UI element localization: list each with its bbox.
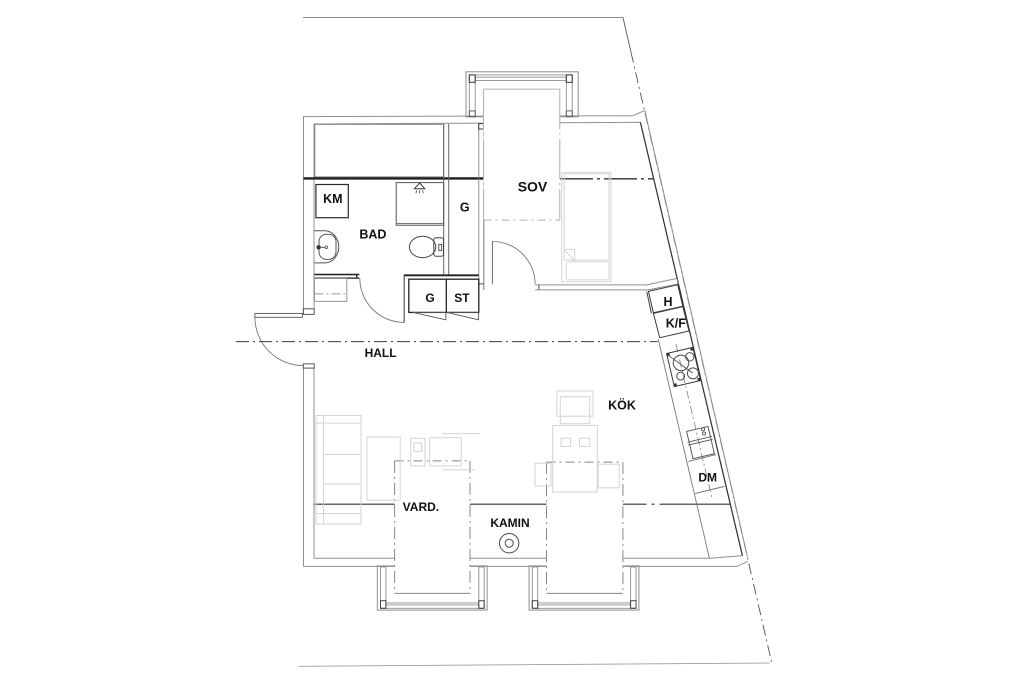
svg-text:KAMIN: KAMIN	[490, 516, 529, 530]
svg-text:SOV: SOV	[518, 179, 548, 195]
svg-text:DM: DM	[698, 471, 717, 485]
svg-text:G: G	[460, 201, 470, 215]
svg-text:K/F: K/F	[666, 316, 687, 330]
svg-text:VARD.: VARD.	[403, 500, 439, 514]
svg-text:G: G	[425, 291, 434, 305]
svg-text:ST: ST	[454, 291, 470, 305]
svg-text:KM: KM	[323, 192, 342, 206]
svg-text:BAD: BAD	[359, 228, 386, 242]
svg-text:HALL: HALL	[365, 346, 397, 360]
svg-text:KÖK: KÖK	[608, 397, 636, 412]
svg-text:H: H	[663, 295, 672, 309]
